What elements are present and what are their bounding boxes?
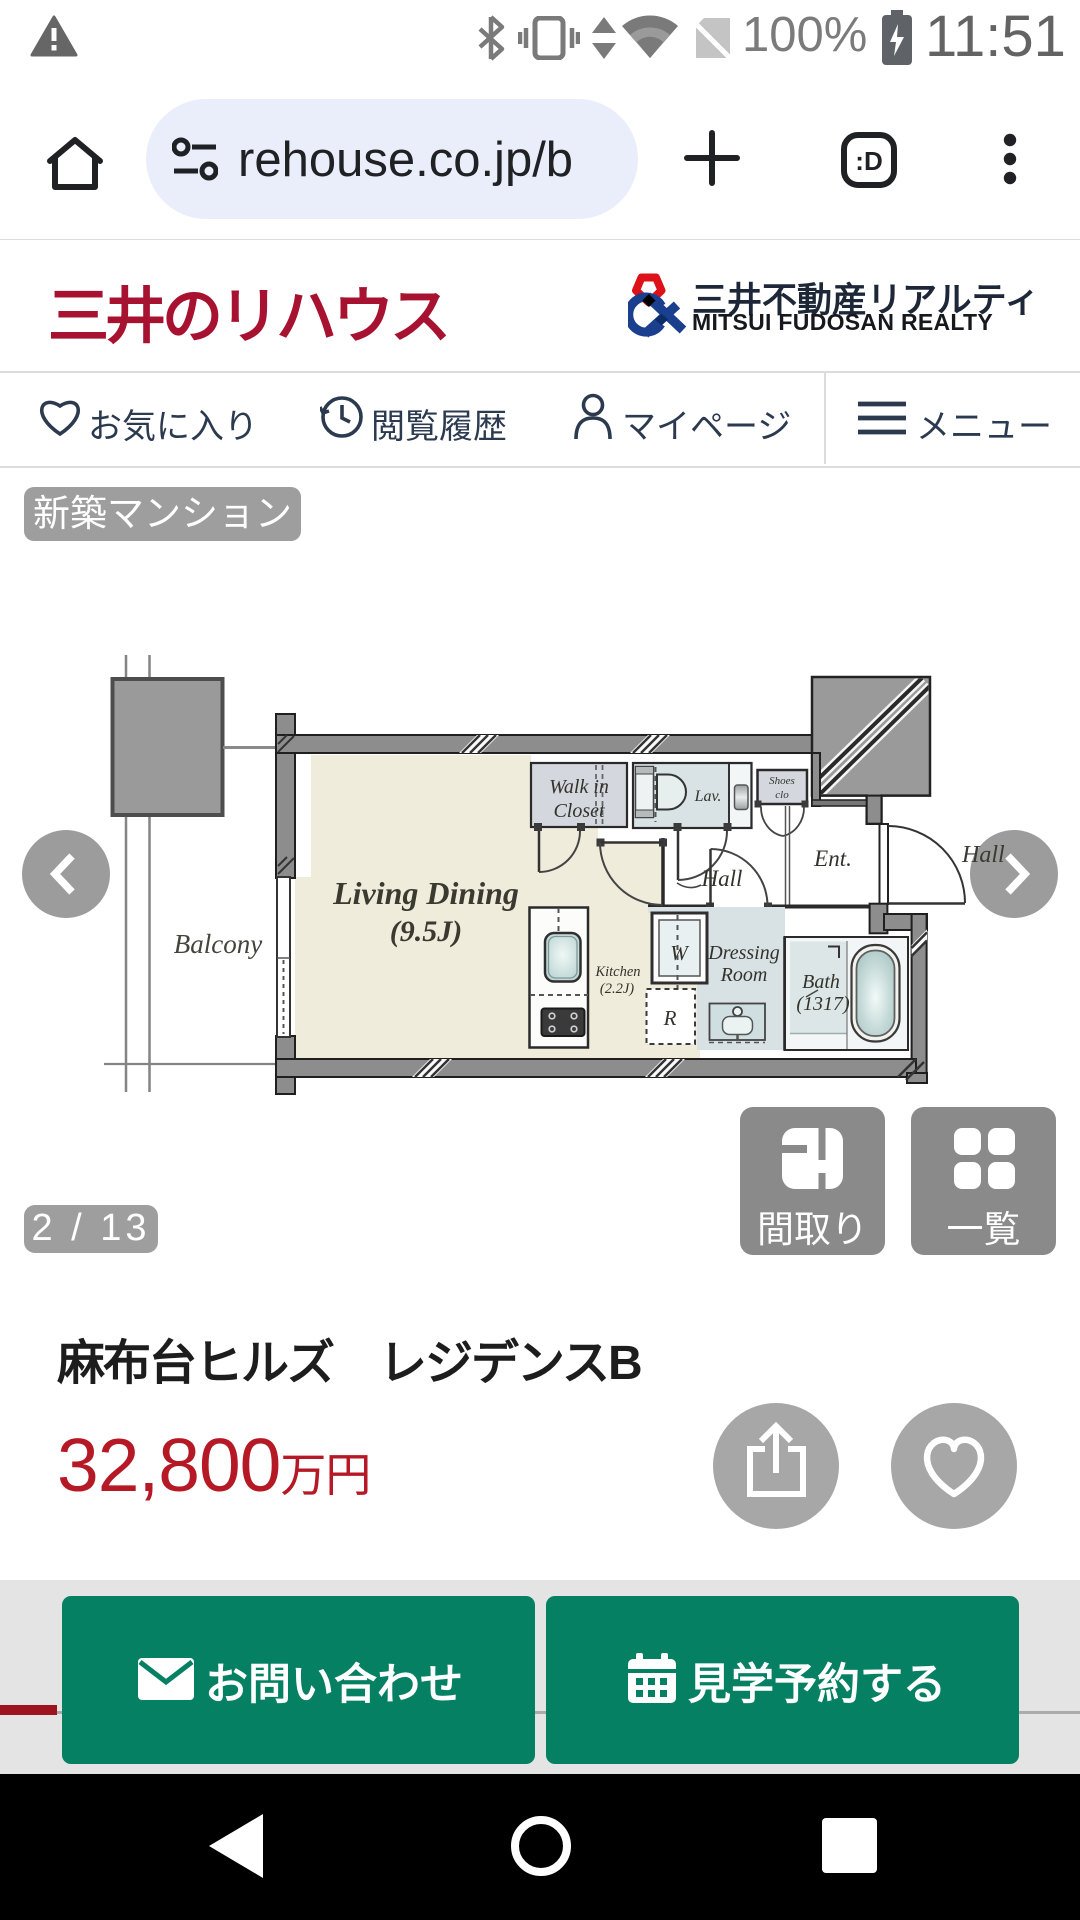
svg-text:Lav.: Lav. — [694, 788, 722, 805]
svg-text:Living Dining: Living Dining — [332, 875, 519, 911]
svg-text:Closet: Closet — [553, 800, 605, 822]
svg-text:Dressing: Dressing — [707, 942, 779, 964]
svg-text:clo: clo — [775, 789, 789, 801]
svg-text:R: R — [663, 1006, 677, 1030]
svg-text:Room: Room — [720, 964, 768, 986]
svg-text:(2.2J): (2.2J) — [600, 981, 634, 997]
svg-text:Kitchen: Kitchen — [594, 964, 640, 980]
svg-text:Hall: Hall — [701, 866, 743, 891]
svg-text:Bath: Bath — [802, 971, 840, 993]
svg-text:Balcony: Balcony — [174, 929, 262, 959]
svg-text:(9.5J): (9.5J) — [390, 915, 462, 948]
svg-text:Shoes: Shoes — [769, 775, 795, 787]
svg-text:(1317): (1317) — [796, 993, 850, 1015]
svg-text::D: :D — [855, 146, 882, 176]
svg-text:W: W — [670, 941, 690, 965]
svg-text:Walk in: Walk in — [549, 776, 609, 798]
svg-text:Ent.: Ent. — [813, 846, 852, 871]
